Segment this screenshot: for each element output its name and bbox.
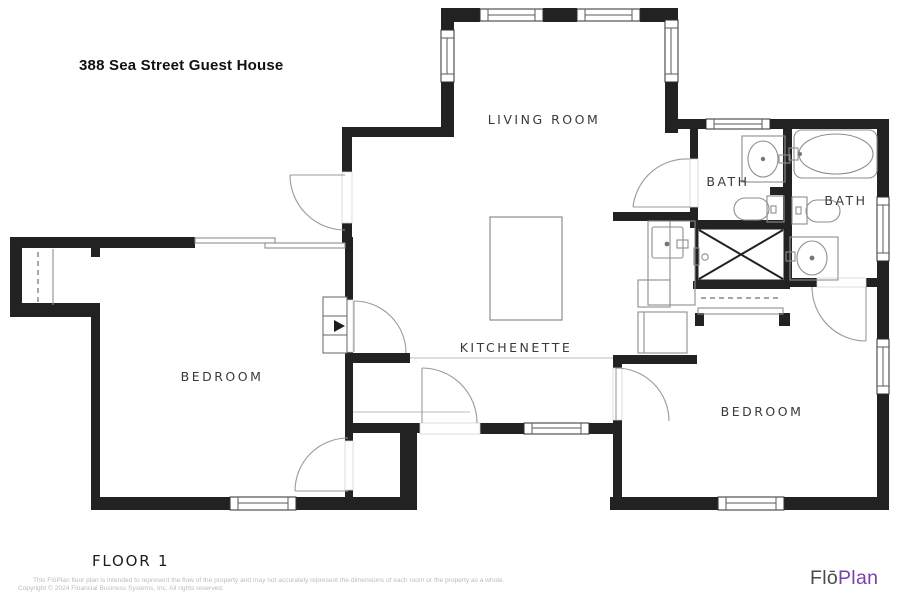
window xyxy=(706,119,770,129)
bathtub xyxy=(789,130,877,178)
window xyxy=(577,9,640,21)
window xyxy=(877,339,889,394)
window xyxy=(524,423,589,434)
door-swing xyxy=(633,159,690,207)
shower xyxy=(694,228,785,281)
door-swing xyxy=(295,438,348,491)
sink-vanity xyxy=(786,237,838,280)
disclaimer-line: This FlōPlan floor plan is intended to r… xyxy=(33,577,538,585)
logo-prefix: Flō xyxy=(810,567,838,589)
door-swing xyxy=(812,287,866,341)
window xyxy=(480,9,543,21)
toilet xyxy=(734,196,784,222)
floplan-logo: FlōPlan xyxy=(810,567,878,590)
window xyxy=(230,497,296,510)
room-label-bath-left: BATH xyxy=(706,174,749,189)
room-divider-lines xyxy=(353,358,613,412)
kitchen-island xyxy=(490,217,562,320)
closet-left-bedroom xyxy=(38,249,53,305)
room-label-kitchenette: KITCHENETTE xyxy=(460,340,573,355)
stairs xyxy=(323,297,347,353)
sliding-door xyxy=(195,238,345,248)
door-swing xyxy=(290,175,345,230)
window xyxy=(718,497,784,510)
floor-label: FLOOR 1 xyxy=(92,552,169,570)
window xyxy=(441,30,454,82)
room-label-bedroom-left: BEDROOM xyxy=(181,369,264,384)
bath-left-fixtures xyxy=(694,136,790,281)
hall-counter-sink xyxy=(648,221,695,305)
copyright-line: Copyright © 2024 Financial Business Syst… xyxy=(18,585,538,593)
logo-suffix: Plan xyxy=(838,567,878,589)
footer-disclaimer: This FlōPlan floor plan is intended to r… xyxy=(18,577,538,592)
door-swing xyxy=(616,368,669,421)
floor-plan: LIVING ROOM KITCHENETTE BEDROOM BEDROOM … xyxy=(0,0,900,600)
door-swing xyxy=(354,301,406,353)
cabinets xyxy=(638,280,687,353)
room-label-living-room: LIVING ROOM xyxy=(488,112,601,127)
door-swing xyxy=(422,368,477,423)
room-label-bedroom-right: BEDROOM xyxy=(721,404,804,419)
window xyxy=(665,20,678,82)
room-label-bath-right: BATH xyxy=(824,193,867,208)
window xyxy=(877,197,889,261)
closet-right-bedroom xyxy=(698,298,783,314)
